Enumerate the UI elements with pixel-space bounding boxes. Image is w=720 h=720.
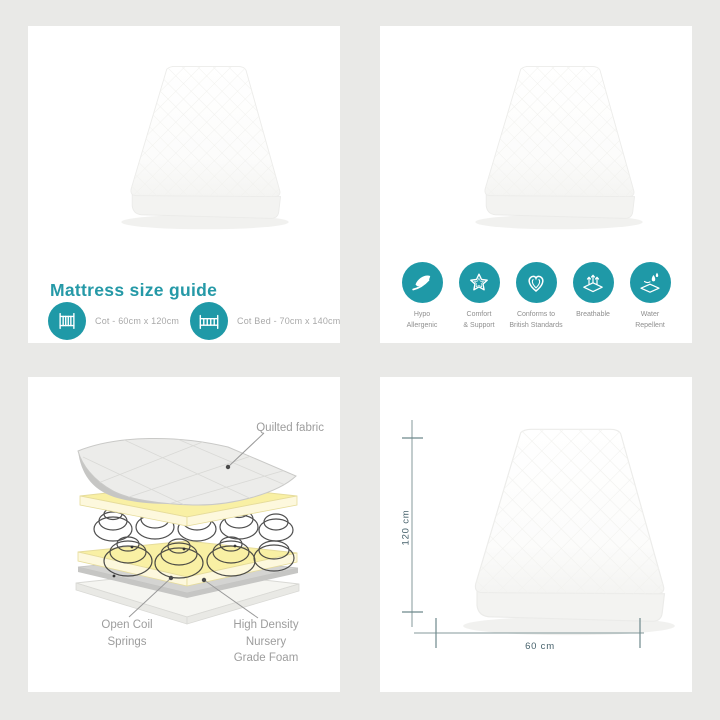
feature-comfort-support: Comfort & Support [451, 262, 508, 332]
cot-bed-icon [190, 302, 228, 340]
mattress-product-image [468, 60, 650, 233]
size-guide-item-label: Cot Bed - 70cm x 140cm [237, 316, 340, 326]
size-guide-item-label: Cot - 60cm x 120cm [95, 316, 179, 326]
feature-british-standards: Conforms to British Standards [508, 262, 565, 332]
panel-construction-diagram: Quilted fabric Open Coil Springs High De… [28, 377, 340, 692]
panel-size-guide: Mattress size guide Cot - 60cm x 120cm [28, 26, 340, 343]
feature-water-repellent: Water Repellent [622, 262, 679, 332]
size-guide-item-cot-bed: Cot Bed - 70cm x 140cm [190, 302, 340, 340]
feature-hypo-allergenic: Hypo Allergenic [394, 262, 451, 332]
size-guide-item-cot: Cot - 60cm x 120cm [48, 302, 179, 340]
foam-label: High Density Nursery Grade Foam [217, 617, 315, 667]
panel-features: Hypo Allergenic Comfort & Support [380, 26, 692, 343]
quilted-fabric-label: Quilted fabric [256, 420, 324, 437]
width-dimension-label: 60 cm [510, 641, 570, 652]
star-icon [459, 262, 500, 303]
cot-icon [48, 302, 86, 340]
feature-label: Comfort & Support [463, 310, 494, 332]
feather-icon [402, 262, 443, 303]
feature-badges-row: Hypo Allergenic Comfort & Support [380, 262, 692, 332]
breathable-icon [573, 262, 614, 303]
feature-label: Conforms to British Standards [509, 310, 562, 332]
panel-dimensions: 120 cm 60 cm [380, 377, 692, 692]
height-dimension-label: 120 cm [401, 506, 412, 550]
mattress-product-image [114, 60, 296, 233]
feature-label: Breathable [576, 310, 610, 321]
feature-label: Water Repellent [635, 310, 665, 332]
water-drops-icon [630, 262, 671, 303]
open-coil-springs-label: Open Coil Springs [84, 617, 170, 650]
heart-icon [516, 262, 557, 303]
feature-label: Hypo Allergenic [407, 310, 438, 332]
feature-breathable: Breathable [565, 262, 622, 332]
product-image-grid: Mattress size guide Cot - 60cm x 120cm [0, 0, 720, 720]
size-guide-title: Mattress size guide [50, 280, 217, 301]
